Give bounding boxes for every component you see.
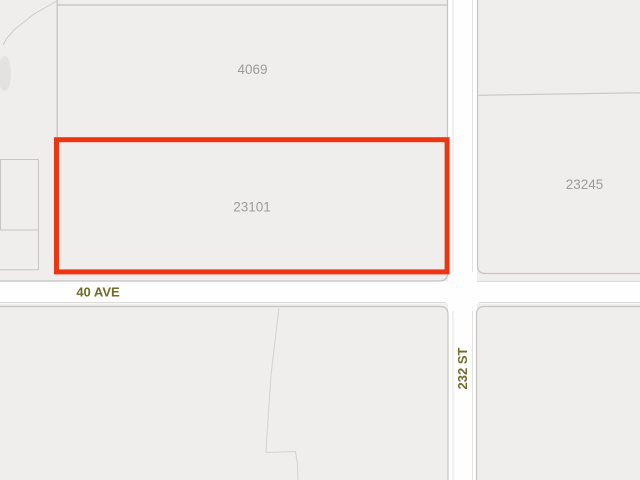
svg-text:23245: 23245 xyxy=(566,177,604,192)
svg-text:40 AVE: 40 AVE xyxy=(76,284,120,299)
svg-text:232 ST: 232 ST xyxy=(455,347,470,389)
svg-text:23101: 23101 xyxy=(233,199,271,214)
svg-text:4069: 4069 xyxy=(237,62,267,77)
